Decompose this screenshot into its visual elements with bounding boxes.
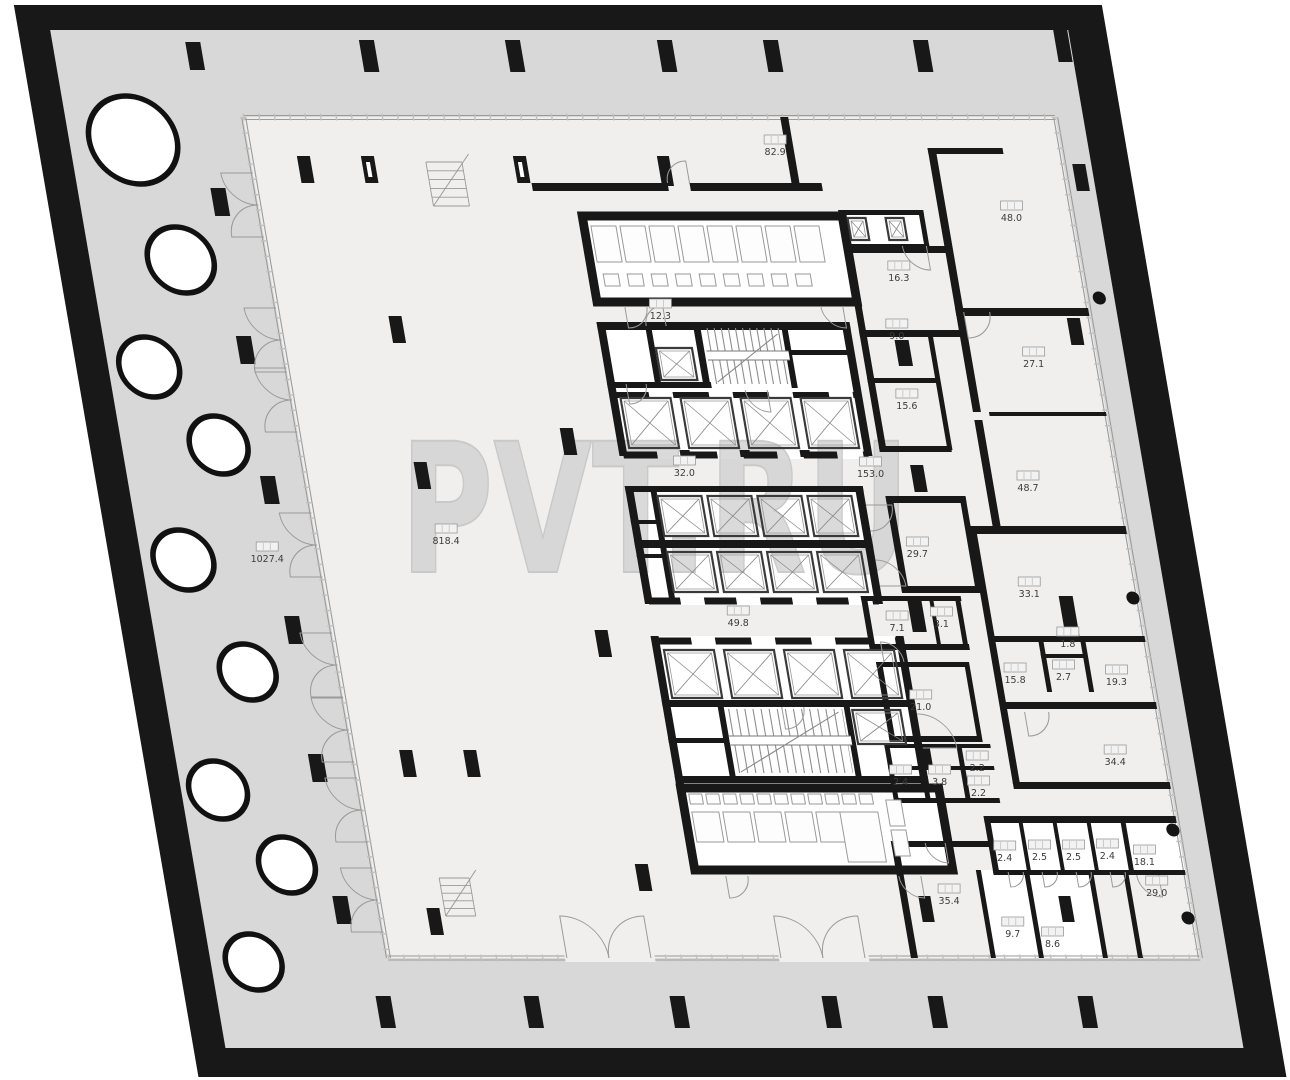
room-area-label: 32.0 bbox=[673, 456, 695, 479]
svg-text:2.2: 2.2 bbox=[971, 788, 986, 799]
svg-text:9.0: 9.0 bbox=[889, 331, 904, 342]
svg-text:2.5: 2.5 bbox=[1066, 852, 1081, 863]
room-area-label: 21.0 bbox=[910, 690, 932, 713]
svg-text:8.6: 8.6 bbox=[1045, 939, 1060, 950]
room-area-label: 48.0 bbox=[1001, 201, 1023, 224]
svg-text:34.4: 34.4 bbox=[1105, 757, 1126, 768]
floor-plan-page: PVT.RU bbox=[0, 0, 1290, 1080]
room-area-label: 49.8 bbox=[727, 606, 749, 629]
room-area-label: 33.1 bbox=[1018, 577, 1040, 600]
svg-text:2.4: 2.4 bbox=[1100, 851, 1115, 862]
svg-text:2.7: 2.7 bbox=[1056, 672, 1071, 683]
svg-text:48.7: 48.7 bbox=[1017, 483, 1038, 494]
room-area-label: 19.3 bbox=[1105, 665, 1127, 688]
room-area-label: 34.4 bbox=[1104, 745, 1126, 768]
room-area-label: 35.4 bbox=[938, 884, 960, 907]
svg-text:15.6: 15.6 bbox=[896, 401, 917, 412]
svg-text:16.3: 16.3 bbox=[888, 273, 909, 284]
room-area-label: 18.1 bbox=[1133, 845, 1155, 868]
svg-text:48.0: 48.0 bbox=[1001, 213, 1022, 224]
svg-text:35.4: 35.4 bbox=[939, 896, 960, 907]
entrance-gap bbox=[564, 951, 656, 962]
svg-text:7.1: 7.1 bbox=[890, 623, 905, 634]
svg-text:153.0: 153.0 bbox=[857, 469, 884, 480]
svg-text:18.1: 18.1 bbox=[1134, 857, 1155, 868]
svg-text:33.1: 33.1 bbox=[1019, 589, 1040, 600]
room-area-label: 48.7 bbox=[1017, 471, 1039, 494]
svg-text:2.2: 2.2 bbox=[970, 763, 985, 774]
svg-text:3.8: 3.8 bbox=[932, 777, 947, 788]
svg-text:3.1: 3.1 bbox=[934, 619, 949, 630]
svg-text:32.0: 32.0 bbox=[674, 468, 695, 479]
svg-text:1.8: 1.8 bbox=[1060, 639, 1075, 650]
floor-plan-drawing: PVT.RU bbox=[0, 0, 1290, 1080]
svg-text:21.0: 21.0 bbox=[910, 702, 931, 713]
svg-text:15.8: 15.8 bbox=[1004, 675, 1025, 686]
room-area-label: 12.3 bbox=[649, 299, 671, 322]
svg-text:19.3: 19.3 bbox=[1106, 677, 1127, 688]
room-area-label: 29.7 bbox=[906, 537, 928, 560]
svg-text:1027.4: 1027.4 bbox=[251, 554, 284, 565]
svg-text:49.8: 49.8 bbox=[728, 618, 749, 629]
room-area-label: 16.3 bbox=[888, 261, 910, 284]
svg-text:9.7: 9.7 bbox=[1005, 929, 1020, 940]
room-area-label: 29.0 bbox=[1146, 876, 1168, 899]
room-area-label: 818.4 bbox=[433, 524, 460, 547]
room-area-label: 27.1 bbox=[1023, 347, 1045, 370]
svg-text:29.0: 29.0 bbox=[1146, 888, 1167, 899]
svg-text:2.5: 2.5 bbox=[1032, 852, 1047, 863]
room-area-label: 15.8 bbox=[1004, 663, 1026, 686]
svg-text:818.4: 818.4 bbox=[433, 536, 460, 547]
entrance-gap bbox=[778, 951, 870, 962]
svg-text:29.7: 29.7 bbox=[907, 549, 928, 560]
svg-text:82.9: 82.9 bbox=[765, 147, 786, 158]
svg-text:27.1: 27.1 bbox=[1023, 359, 1044, 370]
room-area-label: 82.9 bbox=[764, 135, 786, 158]
svg-text:2.4: 2.4 bbox=[997, 853, 1012, 864]
room-area-label: 15.6 bbox=[896, 389, 918, 412]
room-area-label: 153.0 bbox=[857, 457, 884, 480]
svg-text:12.3: 12.3 bbox=[650, 311, 671, 322]
svg-text:2.4: 2.4 bbox=[893, 777, 908, 788]
